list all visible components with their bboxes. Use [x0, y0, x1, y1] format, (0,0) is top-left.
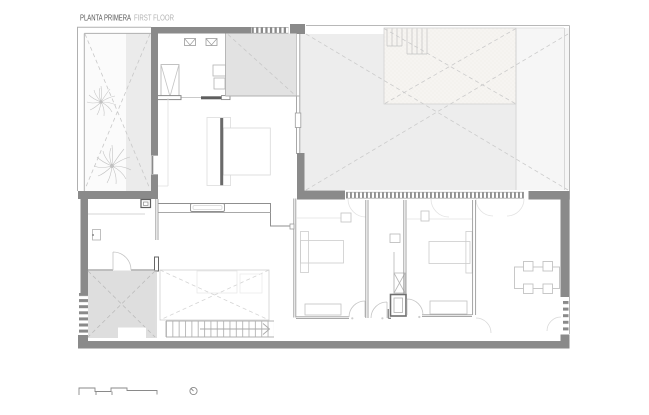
svg-text:PLANTA PRIMERA: PLANTA PRIMERA: [80, 13, 131, 23]
svg-text:FIRST FLOOR: FIRST FLOOR: [134, 13, 174, 23]
